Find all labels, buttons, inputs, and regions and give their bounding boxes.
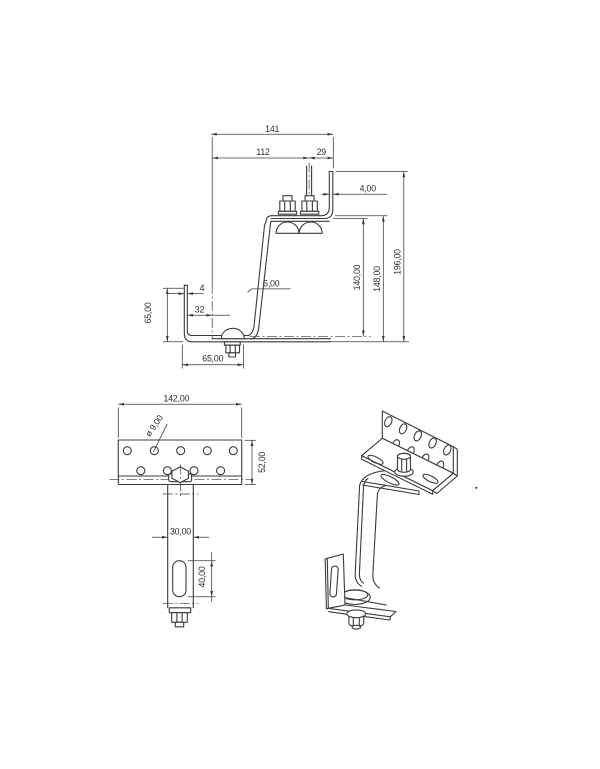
iso-hook-bracket (325, 554, 345, 609)
roof-hook-drawing: 141 112 29 4,00 196,00 148,00 (0, 0, 600, 769)
hole (137, 467, 145, 475)
front-view: 141 112 29 4,00 196,00 148,00 (143, 124, 409, 369)
dim-label-112: 112 (256, 147, 270, 157)
dim-label-65-bottom: 65,00 (202, 354, 223, 364)
hex-nut (172, 613, 188, 623)
dim-right-span: 29 (309, 147, 333, 158)
right-clamp-bolt (299, 196, 322, 234)
hex-nut (226, 345, 240, 353)
slot (173, 561, 186, 597)
iso-arm (355, 471, 419, 588)
dim-web-thickness: 5,00 (248, 278, 291, 292)
dim-label-32: 32 (195, 305, 205, 315)
base-plate-plan (110, 440, 251, 497)
hole (190, 467, 198, 475)
isometric-view (325, 411, 477, 629)
dim-label-196: 196,00 (392, 249, 402, 275)
hole (229, 447, 237, 455)
z-arm-edge (244, 216, 271, 339)
dim-plate-depth: 52,00 (245, 440, 267, 484)
iso-bolt-washer (347, 610, 366, 618)
bracket-face (327, 554, 345, 608)
dim-slot-length: 40,00 (188, 552, 216, 602)
dim-plate-thickness: 4,00 (321, 183, 387, 194)
dim-label-30: 30,00 (170, 527, 191, 537)
hole (123, 447, 131, 455)
technical-drawing-page: 141 112 29 4,00 196,00 148,00 (0, 0, 600, 769)
dim-height-flange-top: 148,00 (331, 216, 410, 342)
dim-overall-height: 196,00 (336, 172, 408, 342)
dim-label-148: 148,00 (372, 266, 382, 292)
dim-label-142: 142,00 (164, 393, 190, 403)
washer (169, 608, 190, 613)
dim-label-4: 4 (200, 283, 205, 293)
dim-label-141: 141 (265, 124, 279, 134)
dim-hook-height: 65,00 (143, 288, 183, 342)
dim-label-5-00: 5,00 (263, 278, 280, 288)
thread-stub (175, 622, 183, 627)
dim-label-140: 140,00 (352, 264, 362, 290)
hole (203, 447, 211, 455)
dim-left-span: 112 (212, 147, 309, 158)
thread-stub (229, 353, 236, 357)
dim-slot-offset: 32 (187, 305, 230, 316)
iso-rail-plate (362, 411, 458, 494)
iso-bolt-tip (352, 625, 361, 629)
dim-label-65-left: 65,00 (143, 302, 153, 323)
dim-label-40: 40,00 (197, 566, 207, 587)
dome-bolt-head (221, 328, 244, 338)
dim-label-52: 52,00 (257, 452, 267, 473)
dim-arm-width: 30,00 (152, 527, 209, 538)
hole (217, 467, 225, 475)
dim-label-4-00: 4,00 (360, 183, 377, 193)
hole (177, 447, 185, 455)
dim-plate-width: 142,00 (118, 393, 241, 438)
dim-label-29: 29 (317, 147, 327, 157)
arm-plan (163, 485, 198, 627)
left-clamp-bolt (276, 196, 299, 234)
plan-view: 142,00 ø 9,00 52,00 30,00 40,00 (110, 393, 267, 626)
stray-dot (475, 487, 477, 489)
iso-top-bolt (398, 453, 411, 472)
